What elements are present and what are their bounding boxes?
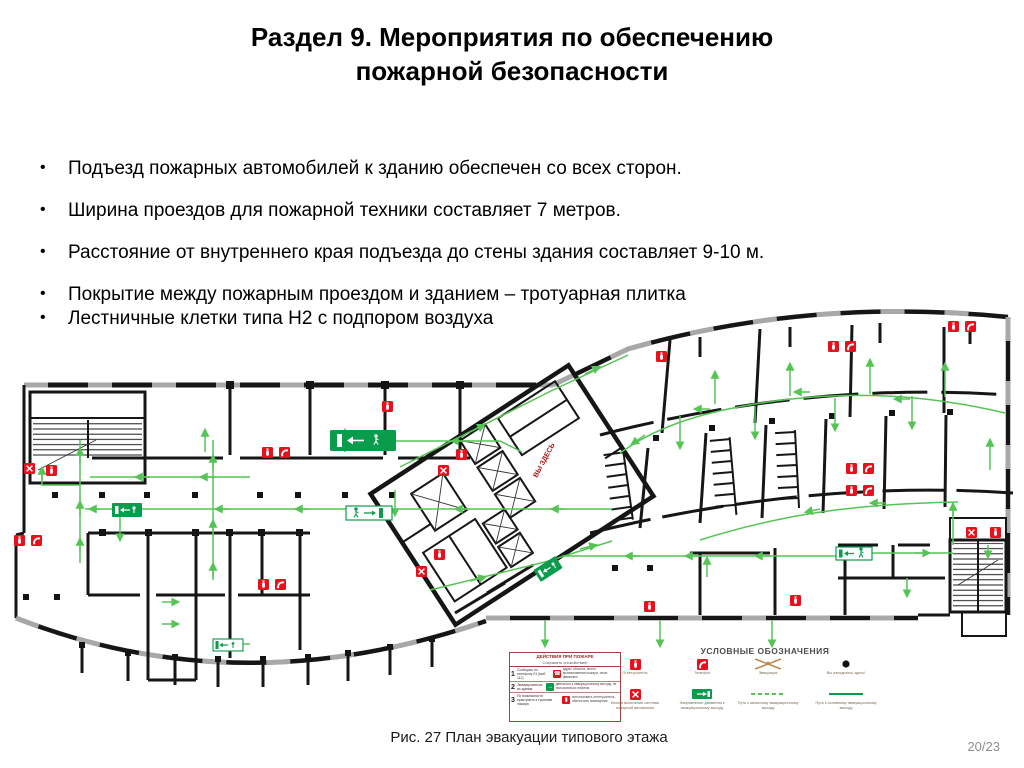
- bullet-marker: •: [40, 158, 68, 180]
- extinguisher-icon: [262, 447, 273, 458]
- slide-title-line2: пожарной безопасности: [0, 54, 1024, 88]
- row-action: Сообщить по телефону 01 (моб. 112): [517, 668, 552, 680]
- bullet-text: Ширина проездов для пожарной техники сос…: [68, 200, 621, 222]
- phone-icon: [965, 321, 976, 332]
- extinguisher-icon: [258, 579, 269, 590]
- columns: [23, 492, 395, 600]
- exit-sign-outline-right: [836, 547, 872, 560]
- alarm-button-icon: [24, 463, 35, 474]
- page-number: 20/23: [967, 739, 1000, 754]
- phone-icon: [279, 447, 290, 458]
- row-action: По возможности приступить к тушению пожа…: [517, 694, 561, 706]
- bullet-item: •Расстояние от внутреннего края подъезда…: [40, 242, 764, 264]
- left-wing: [16, 349, 628, 687]
- central-core: [371, 365, 654, 624]
- extinguisher-icon: [14, 535, 25, 546]
- slide-title: Раздел 9. Мероприятия по обеспечению пож…: [0, 20, 1024, 88]
- exit-direction-icon: [669, 687, 735, 701]
- extinguisher-icon: [790, 595, 801, 606]
- plan-legend: ДЕЙСТВИЯ ПРИ ПОЖАРЕ Сохранять спокойстви…: [505, 645, 983, 729]
- legend-item-extinguisher: Огнетушитель: [602, 657, 668, 676]
- extinguisher-icon: [644, 601, 655, 612]
- bullet-text: Подъезд пожарных автомобилей к зданию об…: [68, 158, 682, 180]
- bullet-marker: •: [40, 242, 68, 264]
- bullet-item: •Ширина проездов для пожарной техники со…: [40, 200, 621, 222]
- bullet-text: Расстояние от внутреннего края подъезда …: [68, 242, 764, 264]
- fire-safety-icons: [14, 321, 1001, 612]
- row-action: Эвакуироваться из здания: [517, 683, 545, 691]
- extinguisher-icon: [602, 657, 668, 671]
- phone-icon: [863, 463, 874, 474]
- bullet-marker: •: [40, 200, 68, 222]
- exit-sign-solid-large: [330, 430, 396, 451]
- solid-path-icon: [813, 687, 879, 701]
- legend-item-exit-direction: Направление движения к эвакуационному вы…: [669, 687, 735, 710]
- extinguisher-icon: [382, 401, 393, 412]
- alarm-button-icon: [966, 527, 977, 538]
- extinguisher-icon: ▮: [562, 696, 570, 704]
- legend-item-phone: Телефон: [669, 657, 735, 676]
- alarm-button-icon: [602, 687, 668, 701]
- legend-heading: УСЛОВНЫЕ ОБОЗНАЧЕНИЯ: [645, 646, 885, 656]
- extinguisher-icon: [46, 465, 57, 476]
- legend-item-reserve-path: Путь к запасному эвакуационному выходу: [735, 687, 801, 710]
- extinguisher-icon: [990, 527, 1001, 538]
- legend-item-you-are-here: Вы находитесь здесь!: [813, 657, 879, 676]
- alarm-button-icon: [416, 566, 427, 577]
- extinguisher-icon: [456, 449, 467, 460]
- phone-icon: [863, 485, 874, 496]
- phone-icon: [275, 579, 286, 590]
- extinguisher-icon: [948, 321, 959, 332]
- dashed-path-icon: [735, 687, 801, 701]
- alarm-button-icon: [438, 465, 449, 476]
- extinguisher-icon: [828, 341, 839, 352]
- legend-item-main-path: Путь к основному эвакуационному выходу: [813, 687, 879, 710]
- phone-icon: [669, 657, 735, 671]
- extinguisher-icon: [846, 463, 857, 474]
- bullet-item: •Подъезд пожарных автомобилей к зданию о…: [40, 158, 682, 180]
- extinguisher-icon: [656, 351, 667, 362]
- figure-caption: Рис. 27 План эвакуации типового этажа: [0, 729, 1024, 746]
- exit-sign-icon: →: [546, 683, 554, 691]
- evacuation-icon: [735, 657, 801, 671]
- phone-icon: [31, 535, 42, 546]
- extinguisher-icon: [434, 549, 445, 560]
- exit-sign-outline-bottom-left: [213, 639, 243, 651]
- you-are-here-icon: [813, 657, 879, 671]
- exit-sign-outline-mid: [346, 506, 392, 520]
- you-are-here-label: ВЫ ЗДЕСЬ: [533, 442, 557, 479]
- exit-sign-solid-small: [112, 503, 142, 517]
- slide-title-line1: Раздел 9. Мероприятия по обеспечению: [0, 20, 1024, 54]
- phone-icon: ☎: [553, 670, 561, 678]
- legend-item-alarm-button: Кнопка включения системы пожарной автома…: [602, 687, 668, 710]
- extinguisher-icon: [846, 485, 857, 496]
- evacuation-path: [42, 355, 1005, 646]
- phone-icon: [845, 341, 856, 352]
- legend-item-evacuation: Эвакуация: [735, 657, 801, 676]
